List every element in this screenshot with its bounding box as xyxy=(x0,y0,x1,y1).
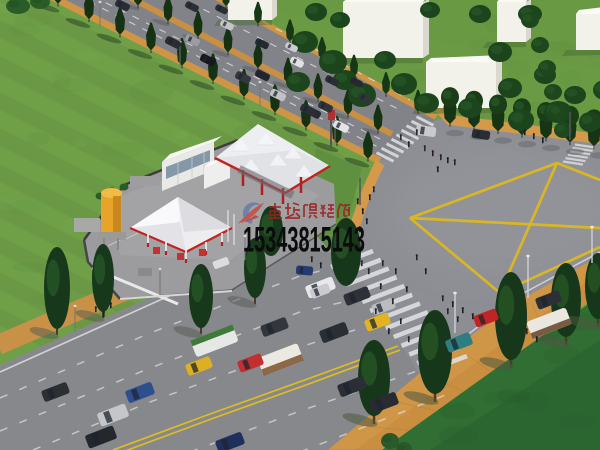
svg-text:15343815143: 15343815143 xyxy=(243,221,365,260)
